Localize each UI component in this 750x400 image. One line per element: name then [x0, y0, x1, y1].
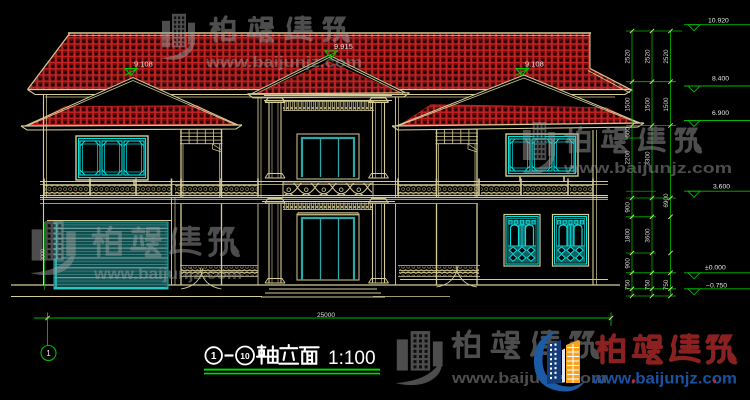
- svg-text:www.baijunjz.com: www.baijunjz.com: [205, 55, 362, 71]
- svg-text:9.108: 9.108: [525, 60, 544, 69]
- svg-text:2520: 2520: [625, 49, 632, 64]
- svg-text:9.108: 9.108: [134, 60, 153, 69]
- svg-text:6.900: 6.900: [712, 110, 729, 117]
- svg-text:1:100: 1:100: [328, 348, 376, 369]
- svg-text:10.920: 10.920: [708, 18, 729, 25]
- svg-text:www.baijunjz.com: www.baijunjz.com: [93, 266, 242, 283]
- svg-text:900: 900: [625, 202, 632, 213]
- svg-text:3.600: 3.600: [713, 183, 730, 190]
- svg-text:1500: 1500: [625, 97, 632, 112]
- svg-text:900: 900: [625, 258, 632, 269]
- svg-text:9.915: 9.915: [334, 42, 353, 51]
- svg-text:2520: 2520: [663, 49, 670, 64]
- svg-text:750: 750: [663, 279, 670, 290]
- svg-text:www.baijunjz.com: www.baijunjz.com: [563, 161, 732, 177]
- svg-text:1800: 1800: [625, 228, 632, 243]
- svg-text:25000: 25000: [317, 312, 335, 319]
- svg-text:1: 1: [46, 349, 51, 358]
- svg-text:8.400: 8.400: [712, 75, 729, 82]
- svg-text:10: 10: [240, 351, 250, 361]
- svg-text:3600: 3600: [645, 228, 652, 243]
- svg-text:www.baijunjz.com: www.baijunjz.com: [451, 371, 607, 387]
- svg-text:750: 750: [625, 279, 632, 290]
- svg-text:2520: 2520: [645, 49, 652, 64]
- svg-text:1500: 1500: [663, 97, 670, 112]
- svg-text:1500: 1500: [645, 97, 652, 112]
- svg-text:750: 750: [645, 279, 652, 290]
- svg-text:www.baijunjz.com: www.baijunjz.com: [591, 371, 737, 388]
- svg-text:−0.750: −0.750: [706, 282, 727, 289]
- svg-text:1: 1: [211, 351, 217, 362]
- svg-text:±0.000: ±0.000: [705, 264, 726, 271]
- svg-text:6900: 6900: [663, 193, 670, 208]
